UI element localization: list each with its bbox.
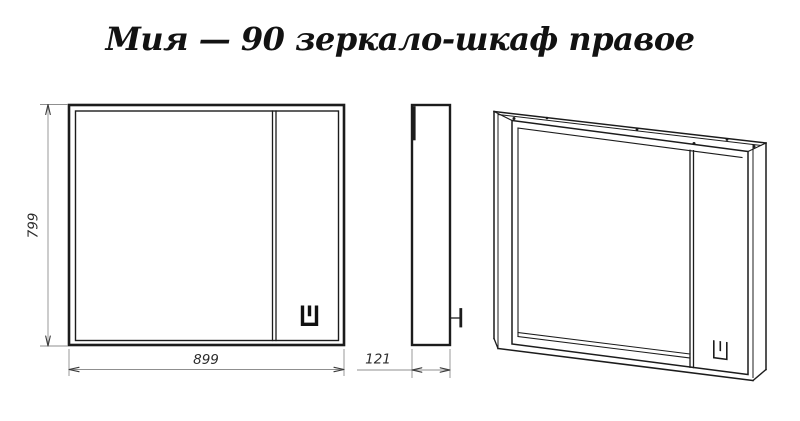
dimension-depth: 121 — [357, 349, 450, 378]
depth-value: 121 — [365, 352, 391, 368]
front-view — [69, 105, 344, 345]
front-inner-frame — [76, 111, 339, 341]
bottom-outer-edge — [498, 349, 753, 381]
door-handle — [451, 310, 461, 327]
side-view — [412, 105, 461, 345]
height-value: 799 — [26, 213, 42, 239]
height-extension-lines — [40, 105, 68, 347]
width-value: 899 — [193, 352, 219, 368]
brand-logo-icon — [303, 306, 317, 325]
perspective-view — [494, 112, 766, 381]
back-top-edge — [494, 112, 766, 144]
dimension-width: 899 — [69, 349, 344, 376]
dimension-height: 799 — [26, 105, 69, 347]
drawing-canvas: Мия — 90 зеркало-шкаф правое 799 899 — [0, 0, 800, 421]
brand-logo-perspective-icon — [714, 340, 727, 359]
door-divider — [690, 150, 694, 367]
top-panel-inner-edge — [498, 115, 761, 146]
depth-extension-lines — [412, 349, 450, 378]
front-door-divider — [273, 111, 277, 341]
bottom-left-corner — [494, 339, 498, 349]
opening-top-edge — [518, 128, 742, 158]
side-outline — [412, 105, 450, 345]
bottom-right-corner — [753, 370, 766, 381]
technical-drawing: 799 899 121 — [0, 0, 800, 421]
